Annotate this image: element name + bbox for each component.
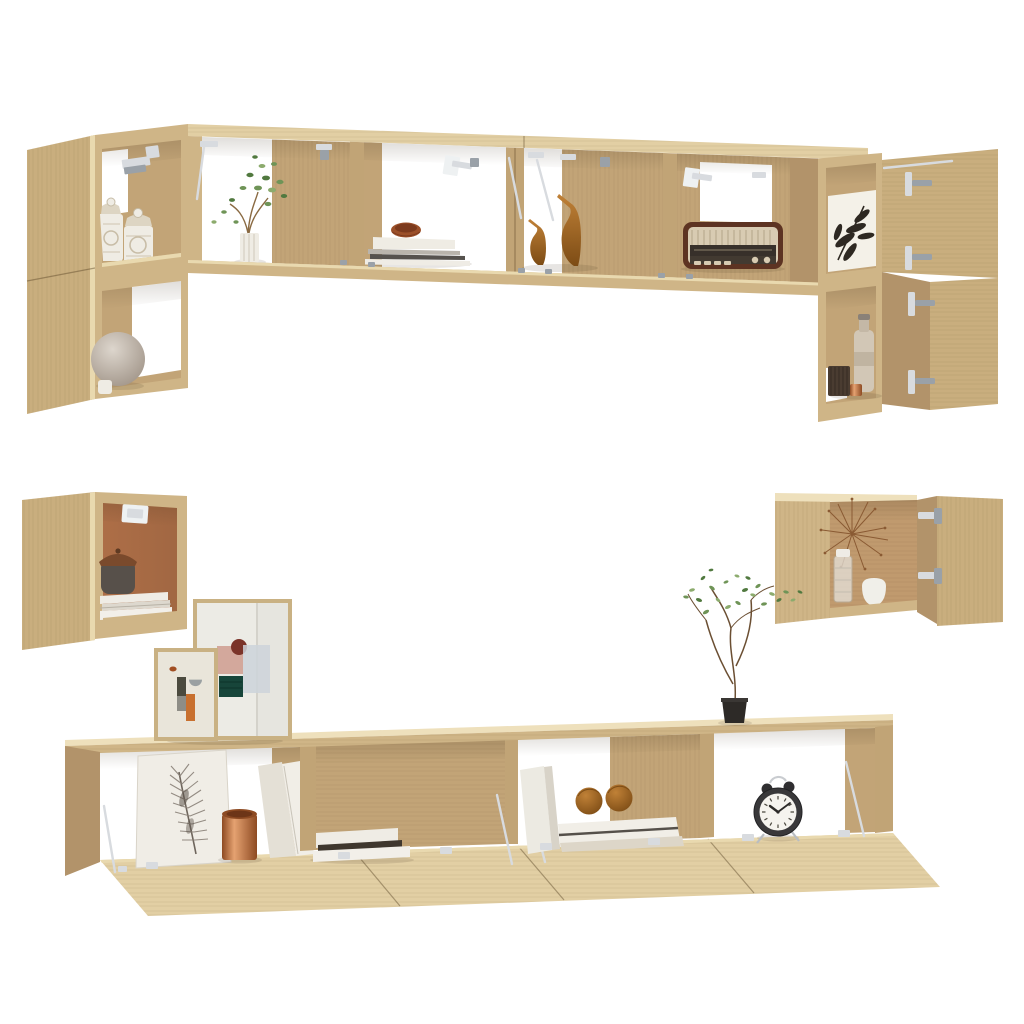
compartment-radio <box>677 154 790 282</box>
side-grain <box>775 495 830 624</box>
door-hinge <box>121 504 148 524</box>
top-wall-unit <box>27 124 998 422</box>
divider <box>505 740 518 844</box>
top-left-tall-cabinet <box>27 124 188 414</box>
compartment-bookstack <box>310 741 505 865</box>
door-grain <box>937 496 1003 626</box>
art-teal-rect <box>219 676 243 697</box>
botanical-leaf-print <box>828 190 876 272</box>
compartment-books <box>364 142 506 271</box>
mid-right-wall-cabinet <box>775 493 1003 626</box>
door-grain <box>22 492 95 650</box>
door-edge-highlight <box>90 492 95 641</box>
top-wall-shelf <box>188 124 868 297</box>
divider <box>663 153 677 278</box>
product-photo-canvas <box>0 0 1024 1024</box>
top-right-tall-cabinet <box>818 149 998 422</box>
pot-rim <box>721 698 748 702</box>
copper-planter <box>218 809 262 864</box>
stand-left-panel <box>65 746 100 876</box>
upper-door-grain <box>882 149 998 278</box>
compartment-feather <box>100 747 314 872</box>
shelf-left-wall <box>188 136 202 261</box>
stand-right-panel <box>875 725 893 833</box>
vintage-radio <box>681 222 785 273</box>
compartment-ducks <box>509 148 663 277</box>
divider <box>300 747 316 852</box>
twig-plant-in-black-pot <box>683 568 803 726</box>
art-bluegray-rect <box>243 645 270 693</box>
wooden-sphere-right <box>606 785 633 812</box>
product-photo-stage <box>0 0 1024 1024</box>
wooden-sphere-left <box>576 788 603 815</box>
lower-door-grain <box>930 278 998 410</box>
compartment-plant <box>197 137 350 266</box>
plant-pot <box>722 700 747 723</box>
small-cup <box>98 380 112 394</box>
mid-left-wall-cabinet <box>22 492 187 650</box>
ribbed-canister <box>828 366 850 396</box>
feather-print <box>136 750 231 868</box>
clock-center-pin <box>776 810 779 813</box>
framed-abstract-art-small <box>154 648 218 741</box>
duck-shadow <box>522 264 598 272</box>
shelf-right-wall <box>790 158 818 284</box>
copper-cup <box>850 384 862 396</box>
clay-bowl <box>391 223 421 238</box>
divider <box>700 734 714 839</box>
art-dot <box>169 667 176 672</box>
sphere-lamp <box>91 332 145 386</box>
side-panel <box>882 272 930 410</box>
plant-branches <box>688 586 774 702</box>
compartment-spheres <box>497 734 700 864</box>
glass-jar <box>834 549 852 602</box>
art-orange-bar <box>186 694 195 721</box>
divider <box>350 142 364 266</box>
